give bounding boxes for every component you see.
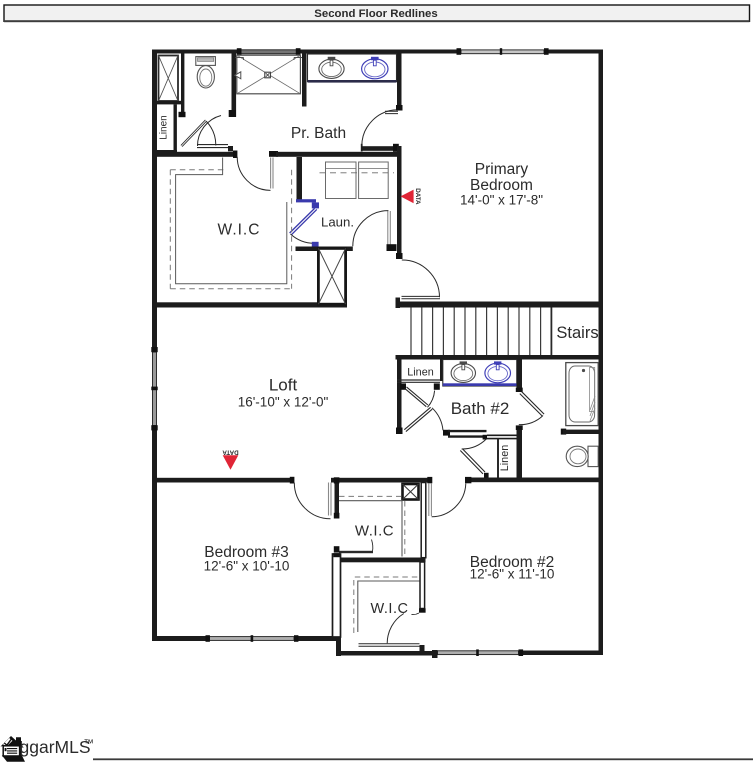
svg-text:Linen: Linen: [407, 367, 433, 379]
svg-text:W.I.C: W.I.C: [218, 222, 261, 239]
svg-text:Laun.: Laun.: [321, 215, 354, 230]
svg-text:DATA: DATA: [222, 449, 239, 456]
svg-text:16'-10" x 12'-0": 16'-10" x 12'-0": [238, 395, 329, 410]
svg-text:Pr. Bath: Pr. Bath: [291, 125, 346, 142]
svg-text:Bedroom: Bedroom: [470, 177, 533, 194]
svg-text:DATA: DATA: [414, 188, 421, 205]
svg-text:ggarMLS: ggarMLS: [20, 737, 91, 757]
svg-text:Primary: Primary: [475, 161, 529, 178]
svg-text:Linen: Linen: [159, 115, 170, 139]
svg-text:Stairs: Stairs: [556, 324, 598, 342]
svg-text:Linen: Linen: [499, 445, 511, 471]
svg-text:Loft: Loft: [269, 376, 298, 395]
svg-text:Second Floor Redlines: Second Floor Redlines: [314, 8, 437, 20]
svg-text:12'-6" x 11'-10: 12'-6" x 11'-10: [470, 567, 555, 582]
svg-text:™: ™: [84, 738, 95, 750]
svg-text:14'-0" x 17'-8": 14'-0" x 17'-8": [460, 193, 543, 208]
svg-text:W.I.C: W.I.C: [355, 523, 394, 540]
svg-text:Bath #2: Bath #2: [451, 399, 510, 418]
svg-text:12'-6" x 10'-10: 12'-6" x 10'-10: [204, 559, 290, 574]
